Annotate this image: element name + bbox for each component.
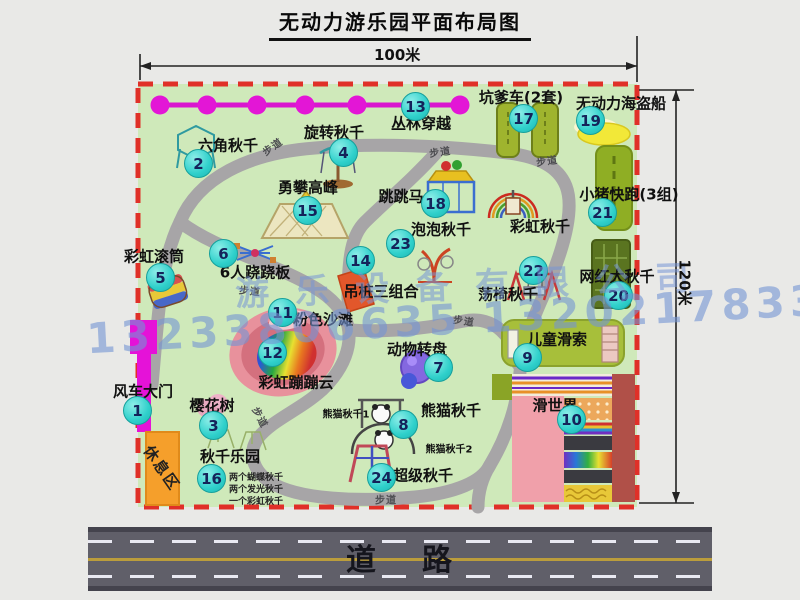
label-bubble-swing: 泡泡秋千 xyxy=(411,219,471,240)
marker-2: 2 xyxy=(184,149,213,178)
label-panda-swing-2: 熊猫秋千2 xyxy=(426,441,473,456)
park-map-canvas: 无动力游乐园平面布局图 100米 120米 xyxy=(0,0,800,600)
label-super-swing: 超级秋千 xyxy=(393,465,453,486)
slide-world-icon xyxy=(492,374,635,502)
marker-23: 23 xyxy=(386,229,415,258)
label-panda-swing-1: 熊猫秋千1 xyxy=(323,406,370,421)
marker-7: 7 xyxy=(424,353,453,382)
marker-12: 12 xyxy=(258,338,287,367)
marker-13: 13 xyxy=(401,92,430,121)
label-jumping-horse: 跳跳马 xyxy=(378,186,423,207)
marker-9: 9 xyxy=(513,343,542,372)
label-peak-climbing: 勇攀高峰 xyxy=(278,177,338,198)
marker-16: 16 xyxy=(197,464,226,493)
walkway-label: 步道 xyxy=(428,142,452,160)
label-swing-chair: 荡椅秋千 xyxy=(478,284,538,305)
label-panda-swing: 熊猫秋千 xyxy=(421,400,481,421)
walkway-label: 步道 xyxy=(452,311,476,329)
label-rotating-swing: 旋转秋千 xyxy=(304,122,364,143)
marker-4: 4 xyxy=(329,138,358,167)
road: 道路 xyxy=(88,527,712,591)
marker-22: 22 xyxy=(519,256,548,285)
marker-19: 19 xyxy=(576,106,605,135)
marker-3: 3 xyxy=(199,411,228,440)
walkway-label: 步道 xyxy=(535,151,559,169)
road-label: 道路 xyxy=(346,535,498,579)
label-pink-beach: 粉色沙滩 xyxy=(293,309,353,330)
width-dimension-label: 100米 xyxy=(374,44,420,65)
marker-14: 14 xyxy=(346,246,375,275)
marker-8: 8 xyxy=(389,410,418,439)
marker-24: 24 xyxy=(367,463,396,492)
label-rainbow-bouncing-cloud: 彩虹蹦蹦云 xyxy=(258,372,333,393)
swing-park-note-3: 一个彩虹秋千 xyxy=(229,494,283,507)
marker-17: 17 xyxy=(509,104,538,133)
marker-5: 5 xyxy=(146,263,175,292)
marker-18: 18 xyxy=(421,189,450,218)
walkway-label: 步道 xyxy=(238,281,261,298)
label-rainbow-swing: 彩虹秋千 xyxy=(510,216,570,237)
marker-20: 20 xyxy=(604,281,633,310)
page-title: 无动力游乐园平面布局图 xyxy=(269,6,531,41)
walkway-label: 步道 xyxy=(375,492,397,507)
marker-21: 21 xyxy=(588,198,617,227)
marker-10: 10 xyxy=(557,405,586,434)
marker-15: 15 xyxy=(293,196,322,225)
height-dimension-label: 120米 xyxy=(675,259,696,305)
marker-1: 1 xyxy=(123,396,152,425)
marker-11: 11 xyxy=(268,298,297,327)
marker-6: 6 xyxy=(209,239,238,268)
label-hanging-piles: 吊桩三组合 xyxy=(343,281,418,302)
